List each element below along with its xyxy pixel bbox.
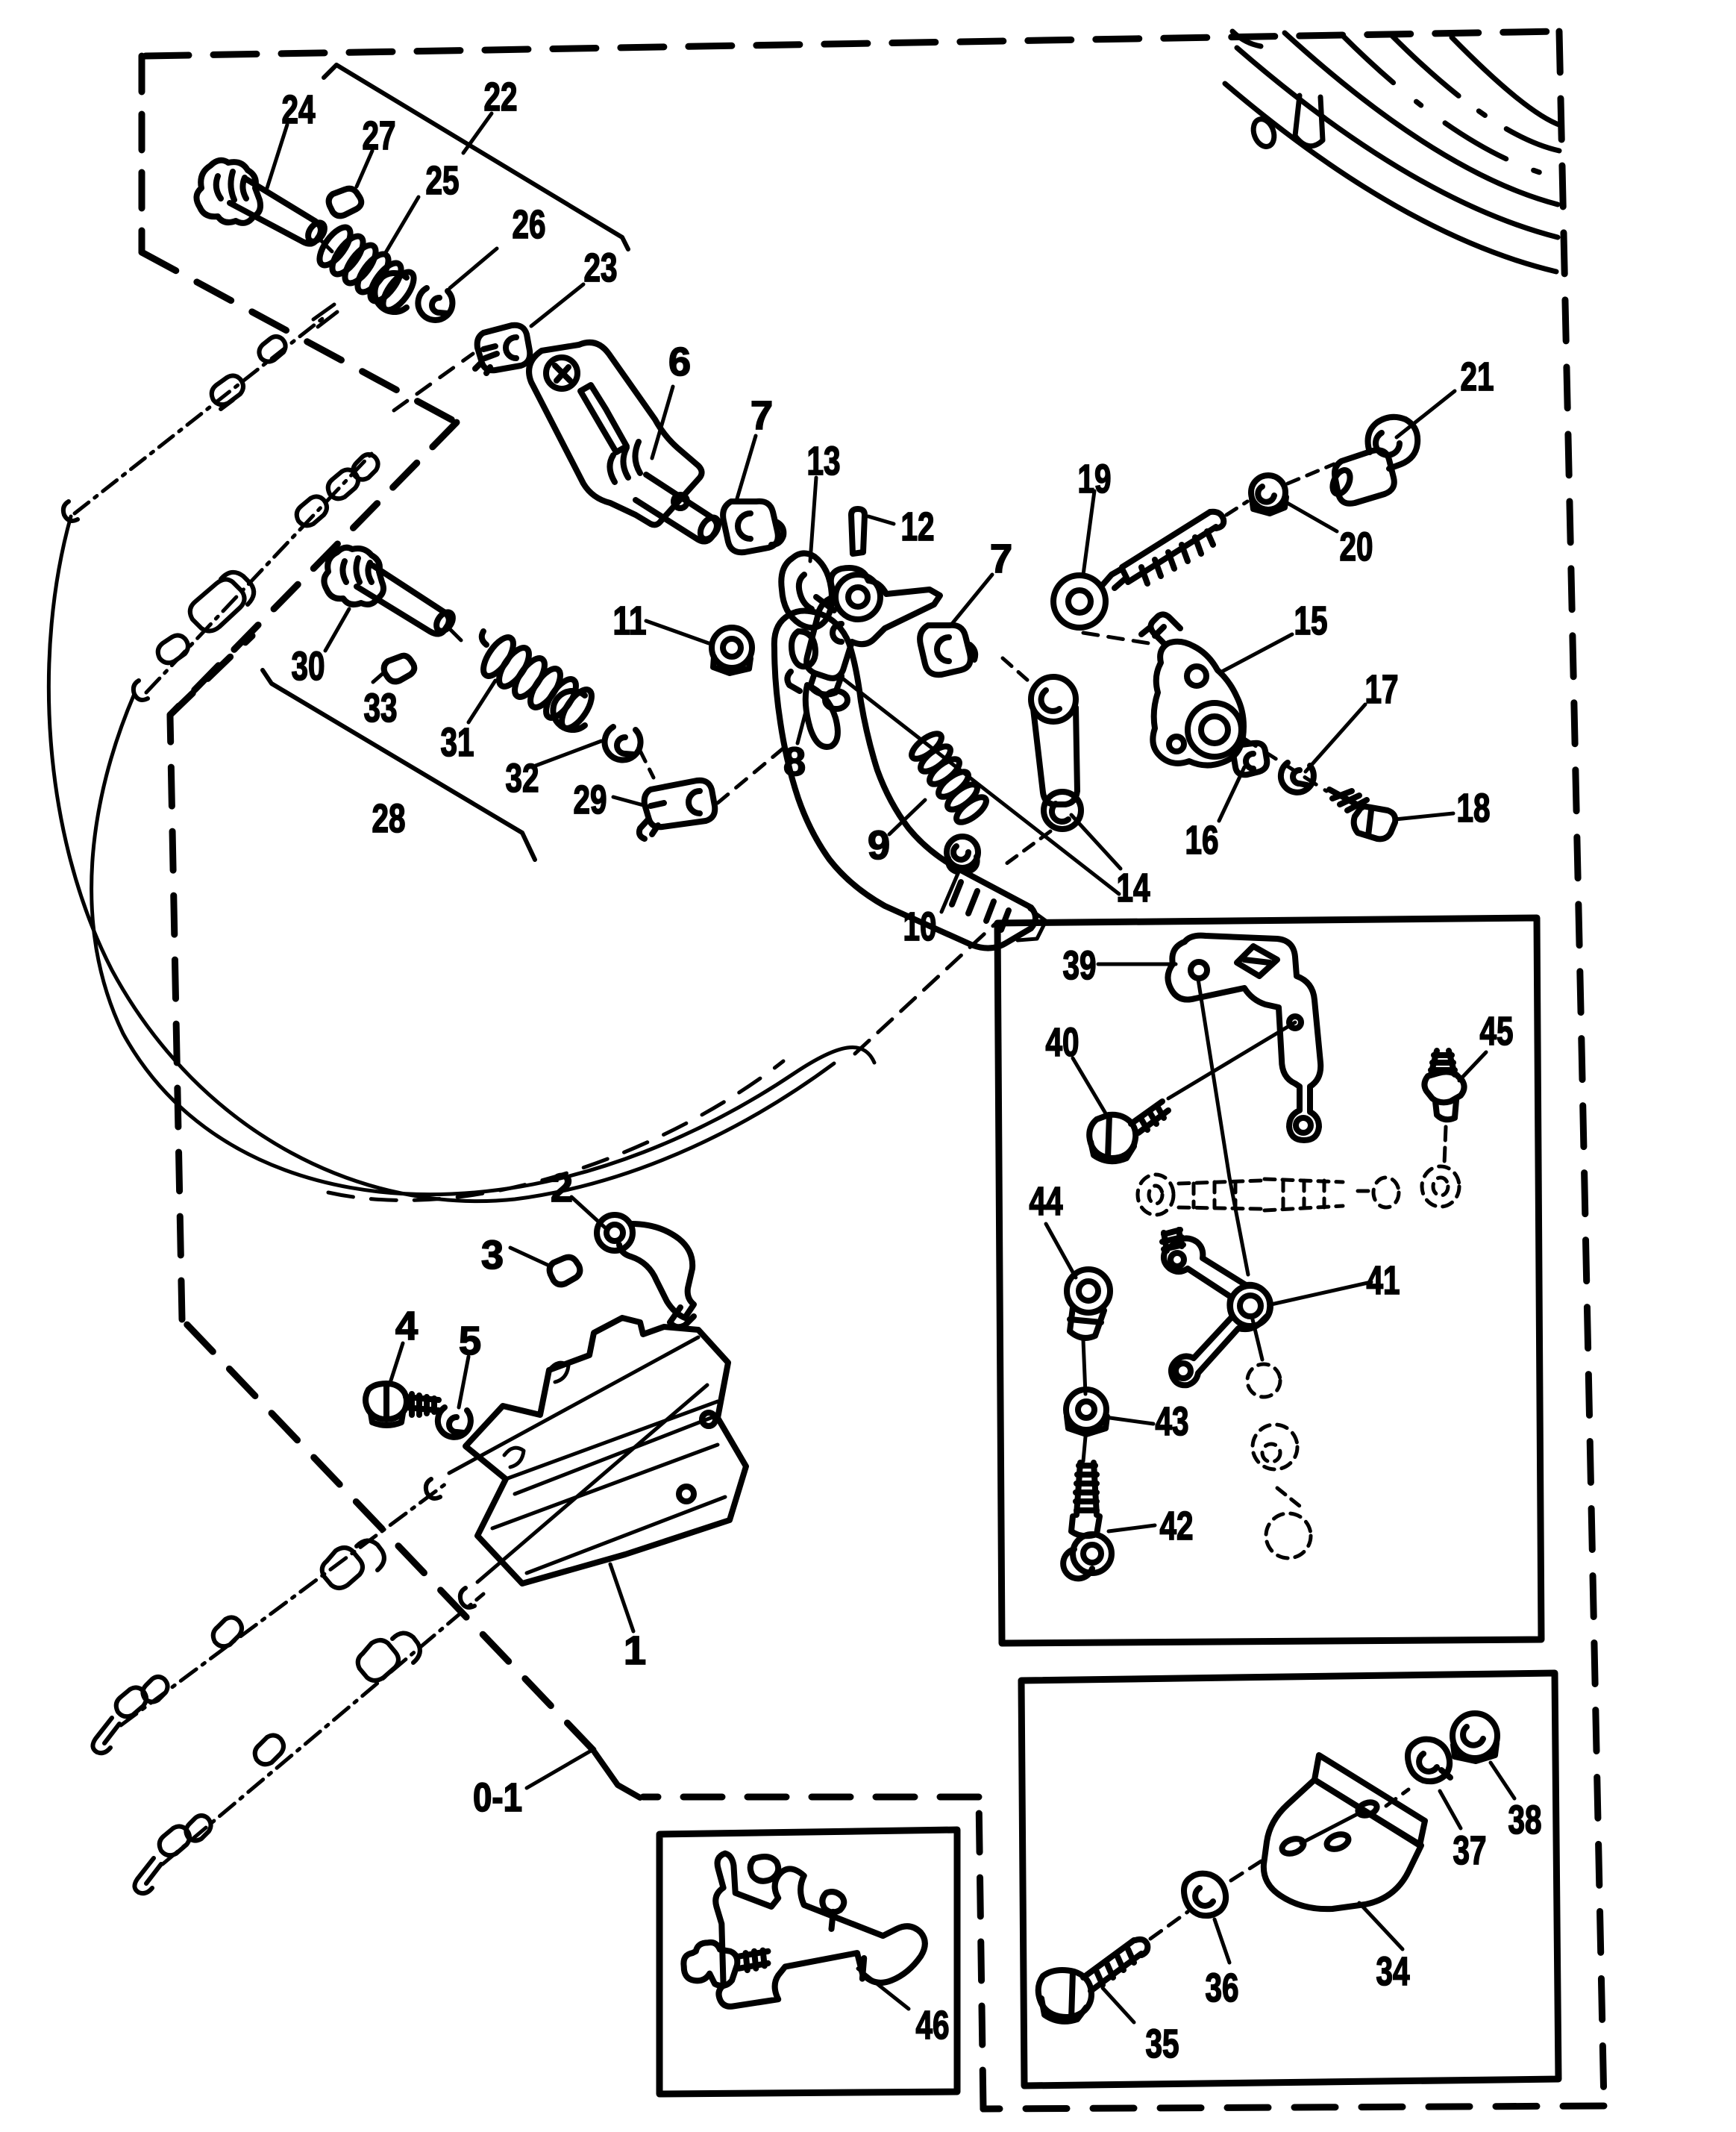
svg-text:44: 44 — [1030, 1179, 1063, 1224]
svg-text:6: 6 — [668, 340, 691, 384]
svg-text:0-1: 0-1 — [473, 1775, 522, 1820]
svg-text:7: 7 — [990, 537, 1012, 581]
svg-text:43: 43 — [1156, 1399, 1189, 1444]
svg-text:42: 42 — [1160, 1504, 1194, 1548]
svg-text:38: 38 — [1508, 1798, 1542, 1842]
svg-text:31: 31 — [441, 720, 474, 765]
svg-text:21: 21 — [1461, 354, 1494, 399]
svg-text:33: 33 — [364, 686, 398, 731]
svg-text:12: 12 — [901, 504, 935, 549]
svg-text:30: 30 — [292, 644, 325, 689]
svg-text:3: 3 — [481, 1233, 504, 1278]
svg-text:24: 24 — [282, 87, 316, 132]
svg-text:39: 39 — [1063, 943, 1097, 988]
svg-text:46: 46 — [916, 2003, 950, 2048]
svg-text:4: 4 — [395, 1304, 418, 1348]
svg-text:16: 16 — [1185, 818, 1219, 863]
svg-text:22: 22 — [484, 75, 518, 119]
svg-text:34: 34 — [1376, 1949, 1410, 1994]
svg-text:32: 32 — [506, 756, 539, 801]
svg-text:40: 40 — [1046, 1020, 1079, 1065]
svg-text:23: 23 — [584, 246, 618, 290]
svg-text:25: 25 — [426, 158, 460, 203]
svg-text:5: 5 — [459, 1319, 481, 1363]
svg-text:14: 14 — [1117, 866, 1150, 910]
svg-text:28: 28 — [372, 796, 406, 841]
svg-text:37: 37 — [1453, 1828, 1487, 1873]
svg-text:19: 19 — [1078, 457, 1112, 501]
svg-text:18: 18 — [1457, 786, 1491, 831]
svg-text:29: 29 — [574, 778, 607, 822]
svg-text:45: 45 — [1480, 1009, 1514, 1054]
svg-text:36: 36 — [1206, 1966, 1239, 2010]
svg-text:17: 17 — [1365, 667, 1399, 712]
svg-text:35: 35 — [1146, 2022, 1179, 2066]
svg-text:10: 10 — [903, 904, 937, 949]
svg-text:8: 8 — [783, 740, 806, 784]
svg-text:26: 26 — [513, 202, 546, 247]
svg-text:41: 41 — [1367, 1258, 1400, 1303]
svg-text:27: 27 — [363, 113, 396, 158]
svg-text:20: 20 — [1340, 525, 1373, 569]
svg-text:9: 9 — [868, 823, 890, 868]
svg-text:11: 11 — [613, 598, 647, 643]
svg-text:15: 15 — [1294, 598, 1328, 643]
svg-text:2: 2 — [551, 1166, 573, 1210]
svg-text:1: 1 — [624, 1628, 646, 1673]
svg-text:13: 13 — [807, 439, 841, 484]
svg-text:7: 7 — [751, 393, 773, 438]
